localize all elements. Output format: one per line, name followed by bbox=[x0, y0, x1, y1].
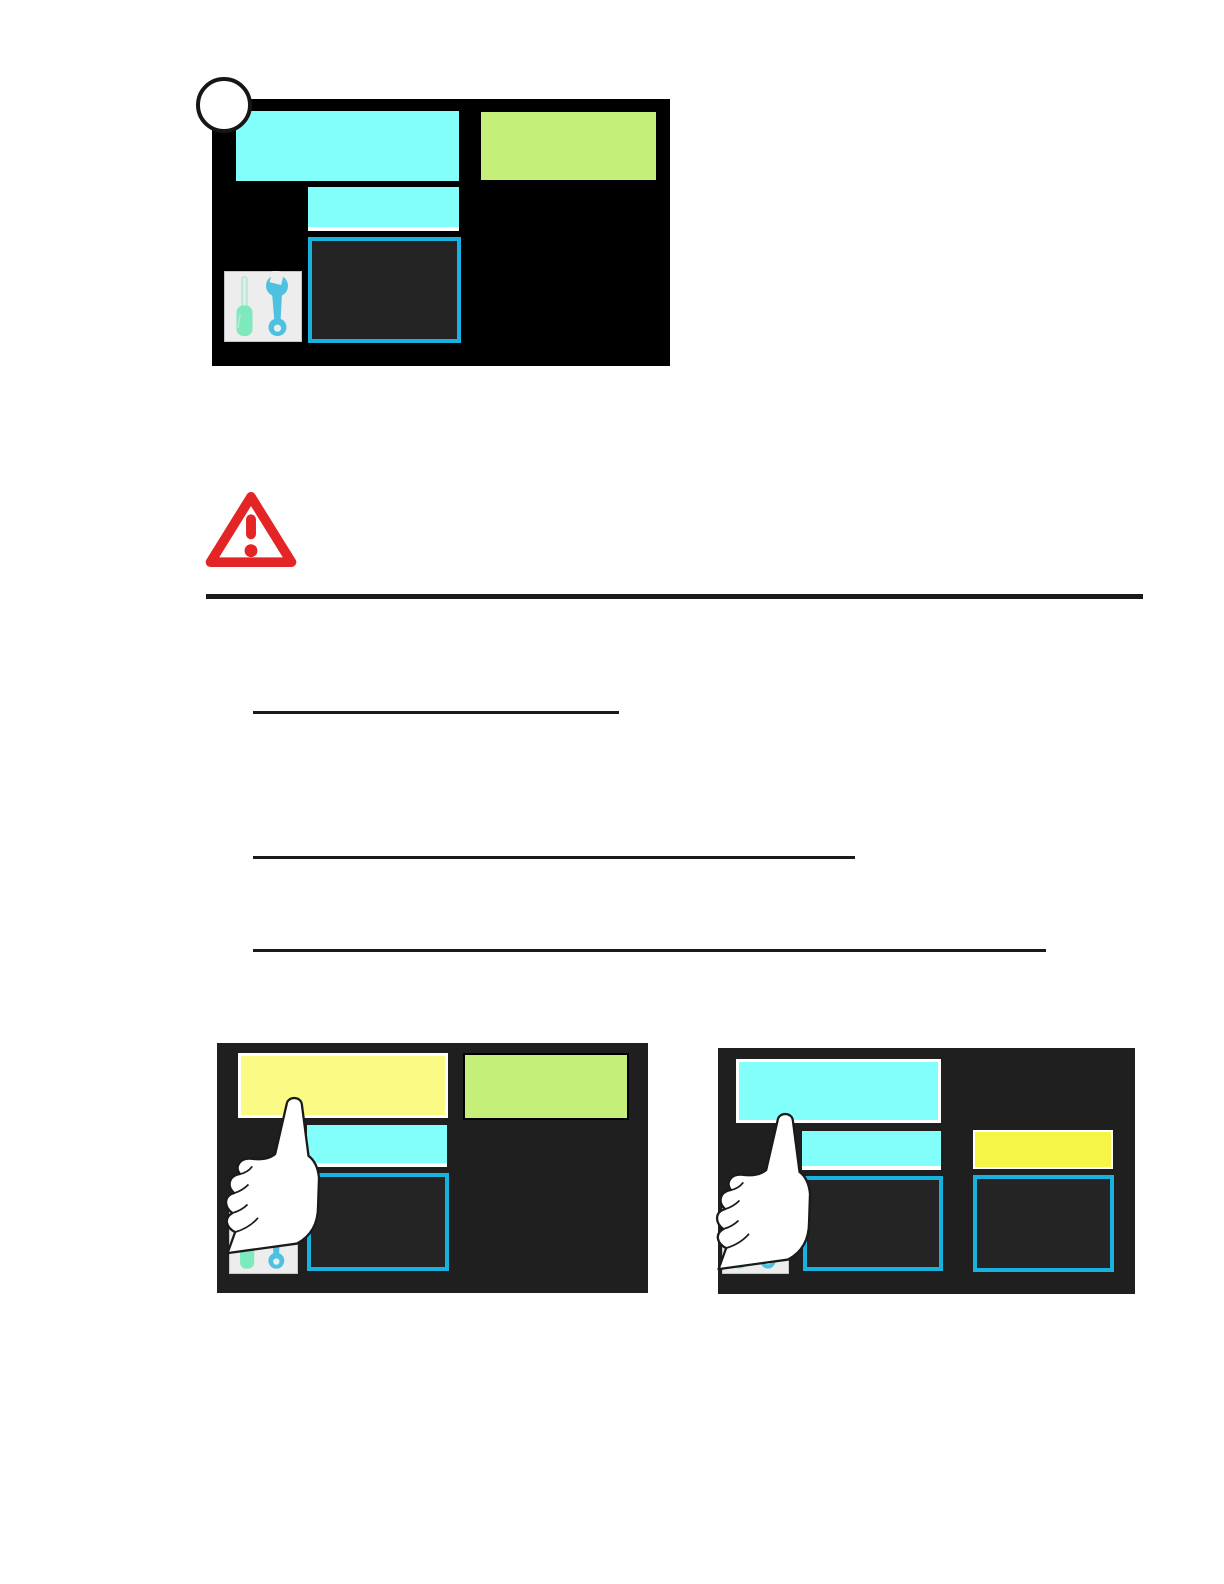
figure-menu-home-screen bbox=[212, 99, 670, 366]
menu-tile-large-cyan bbox=[236, 111, 459, 181]
document-page bbox=[0, 0, 1224, 1584]
menu-box-outlined bbox=[307, 1173, 449, 1271]
link-underline-3[interactable] bbox=[253, 949, 1046, 952]
menu-tile-small-cyan bbox=[308, 187, 459, 231]
link-underline-2[interactable] bbox=[253, 856, 855, 859]
figure-touch-step-left bbox=[217, 1043, 648, 1293]
pointing-hand-icon bbox=[216, 1093, 321, 1255]
menu-tile-small-cyan bbox=[307, 1125, 447, 1167]
step-circle-marker bbox=[196, 77, 252, 133]
menu-tile-green bbox=[463, 1053, 629, 1120]
menu-tile-small-cyan bbox=[802, 1131, 941, 1170]
menu-box-outlined bbox=[308, 237, 461, 343]
figure-touch-step-right bbox=[718, 1048, 1135, 1294]
menu-box-outlined-right bbox=[973, 1175, 1114, 1272]
tools-icon bbox=[224, 271, 302, 342]
warning-triangle-icon bbox=[205, 489, 297, 571]
menu-tile-green bbox=[481, 112, 656, 180]
pointing-hand-icon bbox=[707, 1109, 812, 1271]
link-underline-1[interactable] bbox=[253, 711, 619, 714]
section-divider bbox=[206, 594, 1143, 599]
menu-tile-yellow bbox=[973, 1130, 1113, 1169]
menu-box-outlined-left bbox=[803, 1176, 943, 1271]
